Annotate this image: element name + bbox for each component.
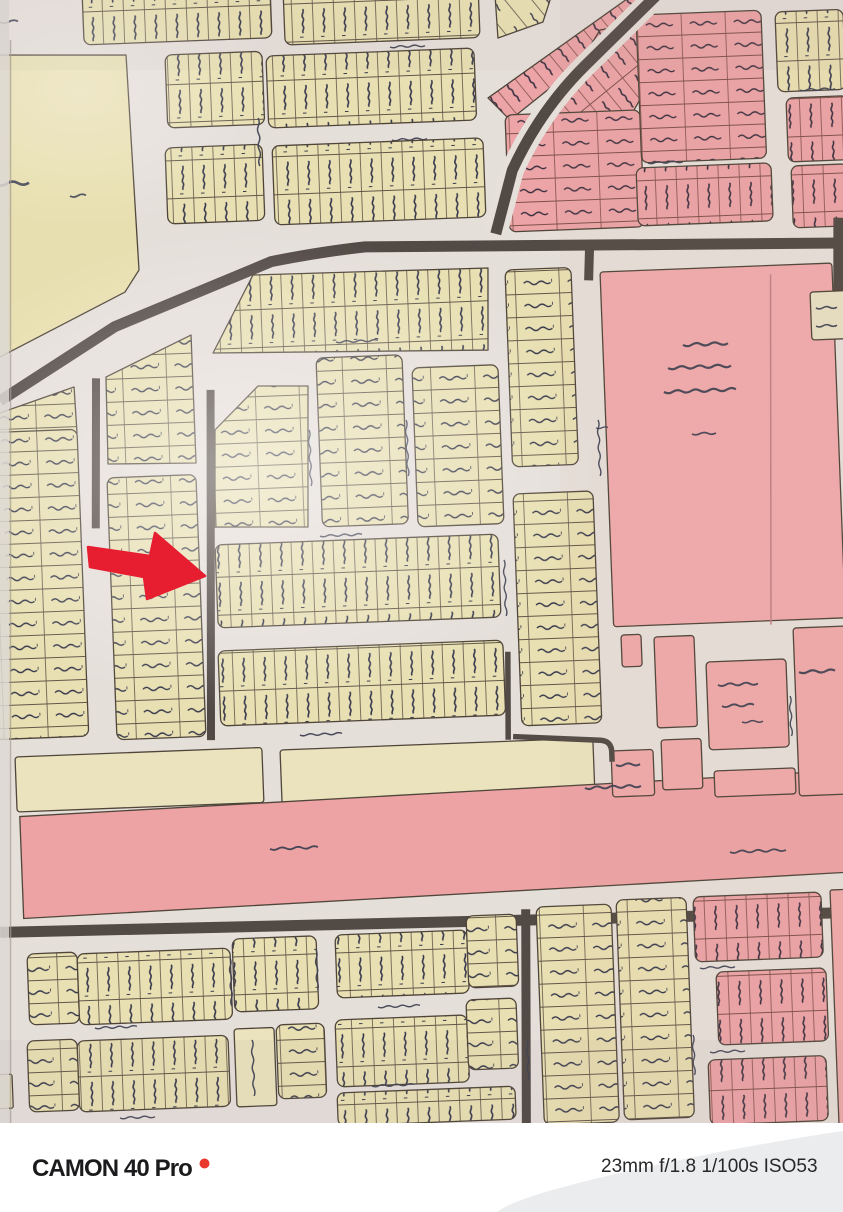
svg-text:CAMON 40 Pro: CAMON 40 Pro (32, 1155, 192, 1182)
svg-text:23mm f/1.8 1/100s ISO53: 23mm f/1.8 1/100s ISO53 (601, 1156, 818, 1177)
